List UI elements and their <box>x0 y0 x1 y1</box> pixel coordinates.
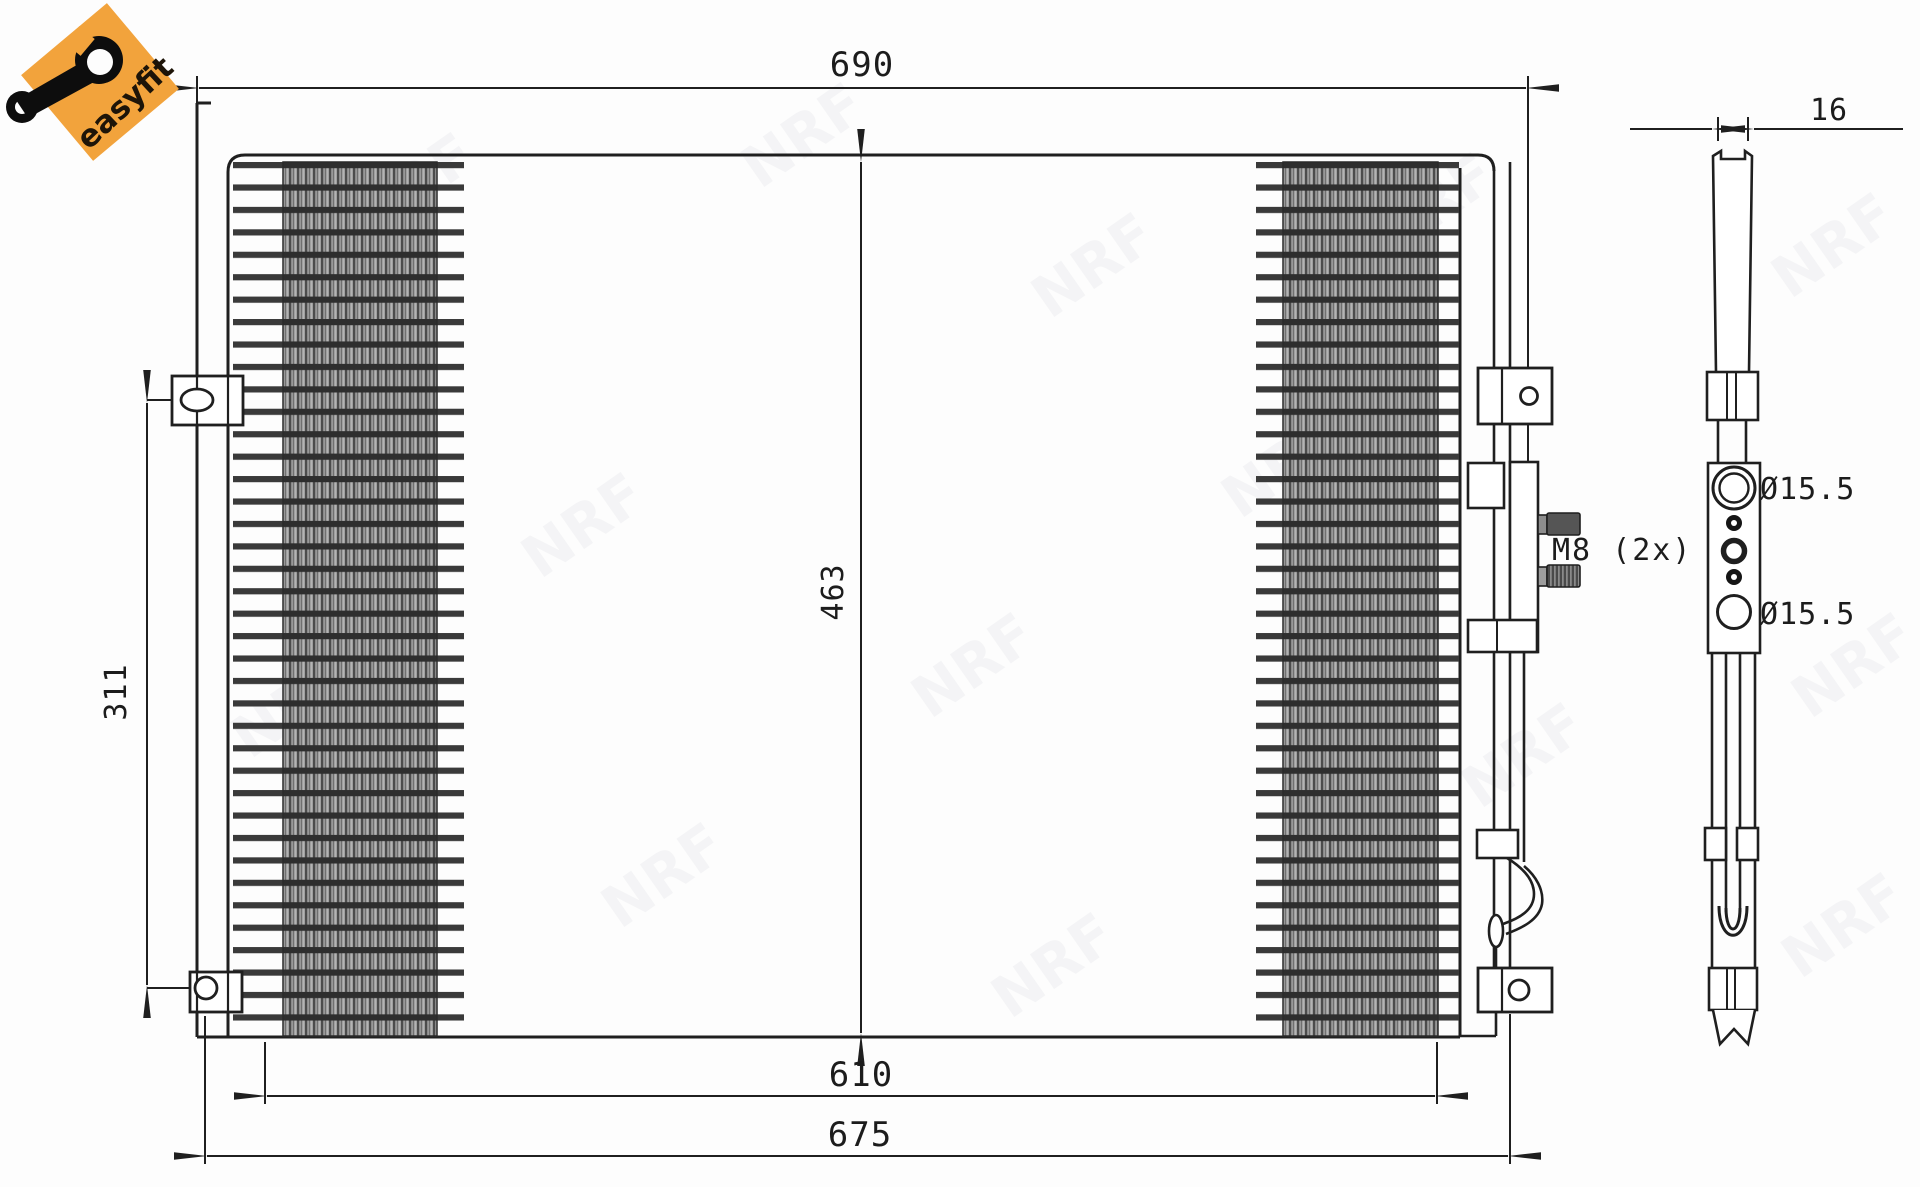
port-top-diameter-label: Ø15.5 <box>1760 472 1855 507</box>
wrench-head-hole <box>87 49 113 75</box>
condenser-technical-drawing: NRF NRF NRF NRF NRF NRF NRF NRF NRF NRF … <box>0 0 1920 1187</box>
side-block-upper <box>1707 372 1758 420</box>
bracket-bottom-right-hole <box>1509 980 1529 1000</box>
port-diameter-labels: Ø15.5 Ø15.5 <box>1760 472 1855 632</box>
bracket-top-right-hole <box>1521 388 1538 405</box>
side-port-plate <box>1708 463 1760 653</box>
watermark-text: NRF <box>1759 180 1907 312</box>
side-clamp-right <box>1737 828 1758 860</box>
dim-bracket-spacing: 311 <box>99 400 190 988</box>
pipe-clamp <box>1477 830 1518 858</box>
dim-value-610: 610 <box>829 1055 893 1095</box>
watermark-text: NRF <box>979 900 1127 1032</box>
tube-stubs-mid-right <box>1256 162 1283 1036</box>
watermark-text: NRF <box>899 600 1047 732</box>
side-foot <box>1713 1010 1755 1044</box>
dim-top-width: 690 <box>197 45 1526 103</box>
stud-1 <box>1547 513 1580 535</box>
mount-clamp-upper <box>1468 463 1504 508</box>
side-tubes-lower <box>1712 653 1755 968</box>
side-ubend-inner <box>1726 908 1740 929</box>
tube-stubs-mid-left <box>437 162 464 1036</box>
side-clamp-left <box>1705 828 1726 860</box>
dim-value-16: 16 <box>1810 93 1848 128</box>
dim-value-690: 690 <box>830 45 894 85</box>
bracket-top-left-hole <box>181 389 213 411</box>
dim-depth: 16 <box>1630 93 1903 141</box>
port-bottom-diameter-label: Ø15.5 <box>1760 597 1855 632</box>
side-ubend-outer <box>1719 906 1747 935</box>
dim-value-311: 311 <box>99 663 134 720</box>
pipe-hook-outer <box>1503 858 1534 924</box>
dim-bottom-inner: 610 <box>265 1042 1437 1104</box>
drawing-canvas: NRF NRF NRF NRF NRF NRF NRF NRF NRF NRF … <box>0 0 1920 1187</box>
port-small-1-hole <box>1731 520 1737 526</box>
watermark-text: NRF <box>509 460 657 592</box>
easyfit-badge: easyfit <box>6 3 181 161</box>
side-block-lower <box>1709 968 1757 1010</box>
watermark-text: NRF <box>1019 200 1167 332</box>
tube-stubs-right <box>1438 162 1459 1036</box>
dim-value-463: 463 <box>816 563 851 620</box>
ext-ticks-311 <box>147 400 190 988</box>
side-view <box>1705 151 1760 1044</box>
fin-pack-left <box>283 162 437 1036</box>
watermark-text: NRF <box>1769 860 1917 992</box>
bracket-top-right <box>1478 368 1552 424</box>
pipe-hook-inner <box>1506 866 1542 934</box>
bolt-size-label: M8 (2x) <box>1552 533 1692 568</box>
dim-core-height: 463 <box>816 162 861 1033</box>
side-tube-upper <box>1713 151 1752 372</box>
stud-2-threaded <box>1547 565 1580 587</box>
stud-2-base <box>1538 567 1547 586</box>
pipe-fitting-oval <box>1489 915 1503 947</box>
left-side-plate-outer <box>197 103 211 1037</box>
bracket-bottom-left-hole <box>195 977 217 999</box>
watermark-text: NRF <box>729 70 877 202</box>
side-neck <box>1718 420 1746 463</box>
left-brackets <box>172 376 243 1012</box>
watermark-text: NRF <box>589 810 737 942</box>
fin-pack-right <box>1283 162 1438 1036</box>
ext-ticks-16 <box>1718 117 1748 141</box>
port-small-2-hole <box>1731 574 1737 580</box>
dim-value-675: 675 <box>828 1115 892 1155</box>
mount-clamp-lower <box>1468 620 1537 652</box>
tube-stubs-left <box>233 162 283 1036</box>
stud-1-base <box>1538 515 1547 534</box>
